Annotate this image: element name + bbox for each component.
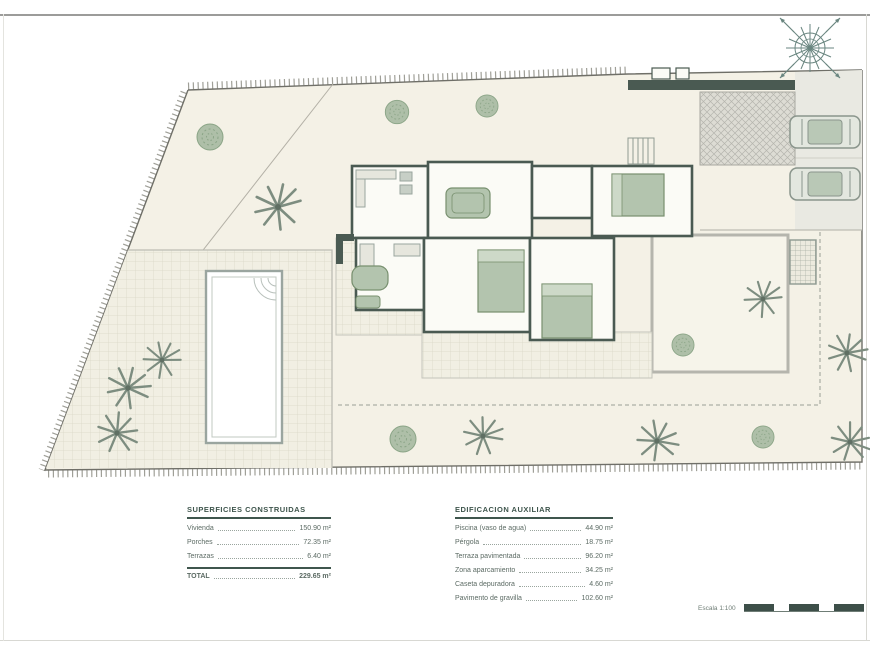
scale-segment	[789, 604, 819, 611]
garden-bush	[752, 426, 774, 448]
compass-rose-icon	[780, 18, 840, 78]
scale-segment	[819, 604, 834, 611]
graphic-scale-bar	[744, 601, 864, 612]
bed	[542, 284, 592, 338]
dining-table	[446, 188, 490, 218]
parking-pad-paving	[700, 92, 795, 165]
bed	[478, 250, 524, 312]
pool-terrace	[46, 250, 332, 468]
built-areas-rows: Vivienda150.90 m²Porches72.35 m²Terrazas…	[187, 525, 331, 560]
table-row: Pérgola18.75 m²	[455, 539, 613, 546]
table-row: Terraza pavimentada96.20 m²	[455, 553, 613, 560]
garden-bush	[385, 100, 408, 123]
plan-sheet: SUPERFICIES CONSTRUIDAS Vivienda150.90 m…	[0, 0, 870, 652]
car	[790, 168, 860, 200]
scale-segment	[774, 604, 789, 611]
garden-bush	[197, 124, 223, 150]
scale-segment	[834, 604, 864, 611]
bed	[612, 174, 664, 216]
auxiliary-table: EDIFICACION AUXILIAR Piscina (vaso de ag…	[455, 506, 613, 609]
built-areas-title: SUPERFICIES CONSTRUIDAS	[187, 506, 331, 519]
garden-bush	[672, 334, 694, 356]
built-areas-table: SUPERFICIES CONSTRUIDAS Vivienda150.90 m…	[187, 506, 331, 580]
table-row: Piscina (vaso de agua)44.90 m²	[455, 525, 613, 532]
table-row: Porches72.35 m²	[187, 539, 331, 546]
scale-segment	[744, 604, 774, 611]
auxiliary-title: EDIFICACION AUXILIAR	[455, 506, 613, 519]
table-row: TOTAL229.65 m²	[187, 573, 331, 580]
pergola	[790, 240, 816, 284]
table-row: Pavimento de gravilla102.60 m²	[455, 595, 613, 602]
garden-bush	[476, 95, 498, 117]
swimming-pool	[206, 271, 282, 443]
garden-bush	[390, 426, 416, 452]
table-row: Caseta depuradora4.60 m²	[455, 581, 613, 588]
site-plan-drawing	[0, 0, 870, 652]
table-row: Zona aparcamiento34.25 m²	[455, 567, 613, 574]
scale-bar: Escala 1:100	[698, 601, 864, 612]
car	[790, 116, 860, 148]
built-areas-total: TOTAL229.65 m²	[187, 567, 331, 580]
auxiliary-rows: Piscina (vaso de agua)44.90 m²Pérgola18.…	[455, 525, 613, 602]
scale-label: Escala 1:100	[698, 605, 736, 612]
table-row: Vivienda150.90 m²	[187, 525, 331, 532]
table-row: Terrazas6.40 m²	[187, 553, 331, 560]
